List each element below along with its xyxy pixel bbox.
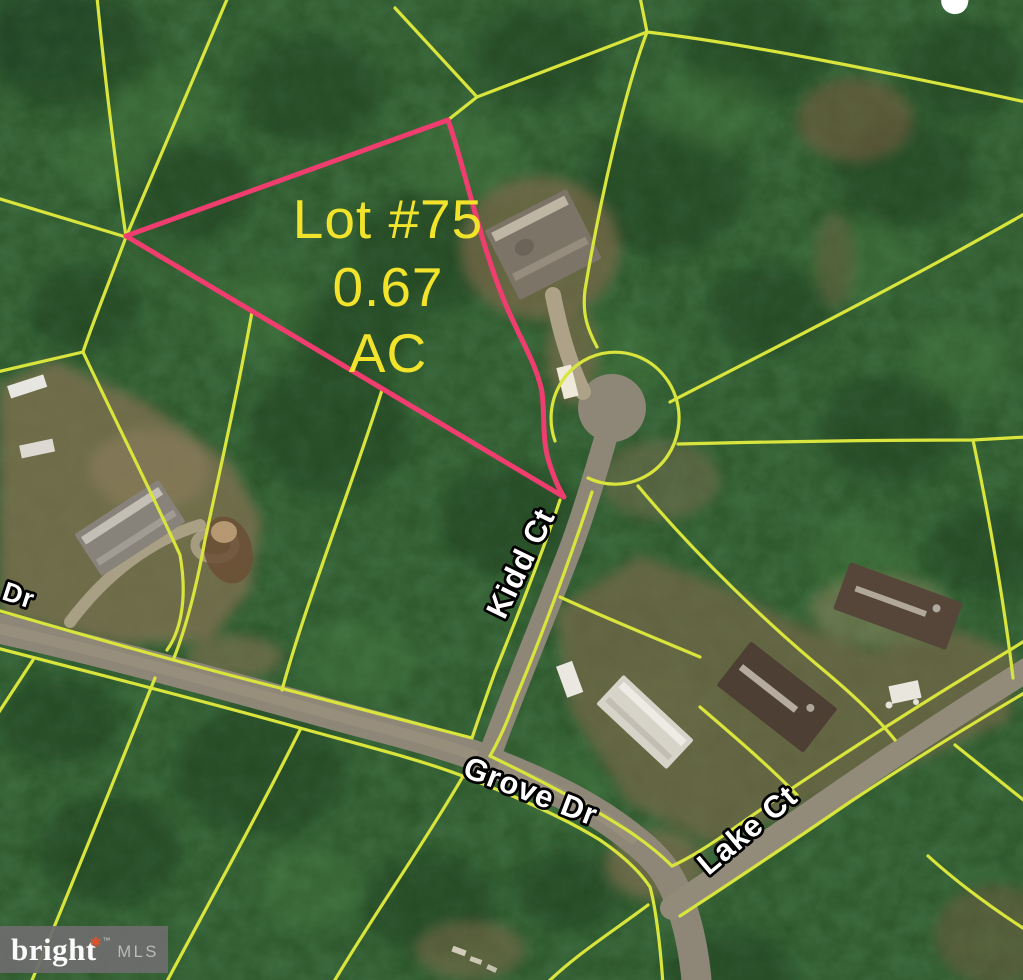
aerial-plat-map: Lot #75 0.67 AC Kidd Ct Grove Dr Lake Ct… bbox=[0, 0, 1023, 980]
watermark-brand-text: bright bbox=[11, 934, 97, 965]
lot-label-line2: 0.67 bbox=[332, 256, 443, 318]
watermark-mls-text: MLS bbox=[117, 944, 158, 961]
lot-label-line1: Lot #75 bbox=[293, 188, 484, 250]
watermark-star-icon: ✱ bbox=[90, 935, 102, 949]
lot-label-line3: AC bbox=[349, 322, 427, 384]
dirt-mound-top bbox=[211, 521, 237, 543]
brightmls-watermark: bright ✱ ™ MLS bbox=[0, 926, 168, 973]
watermark-tm-mark: ™ bbox=[102, 937, 110, 945]
map-canvas: Lot #75 0.67 AC Kidd Ct Grove Dr Lake Ct… bbox=[0, 0, 1023, 980]
